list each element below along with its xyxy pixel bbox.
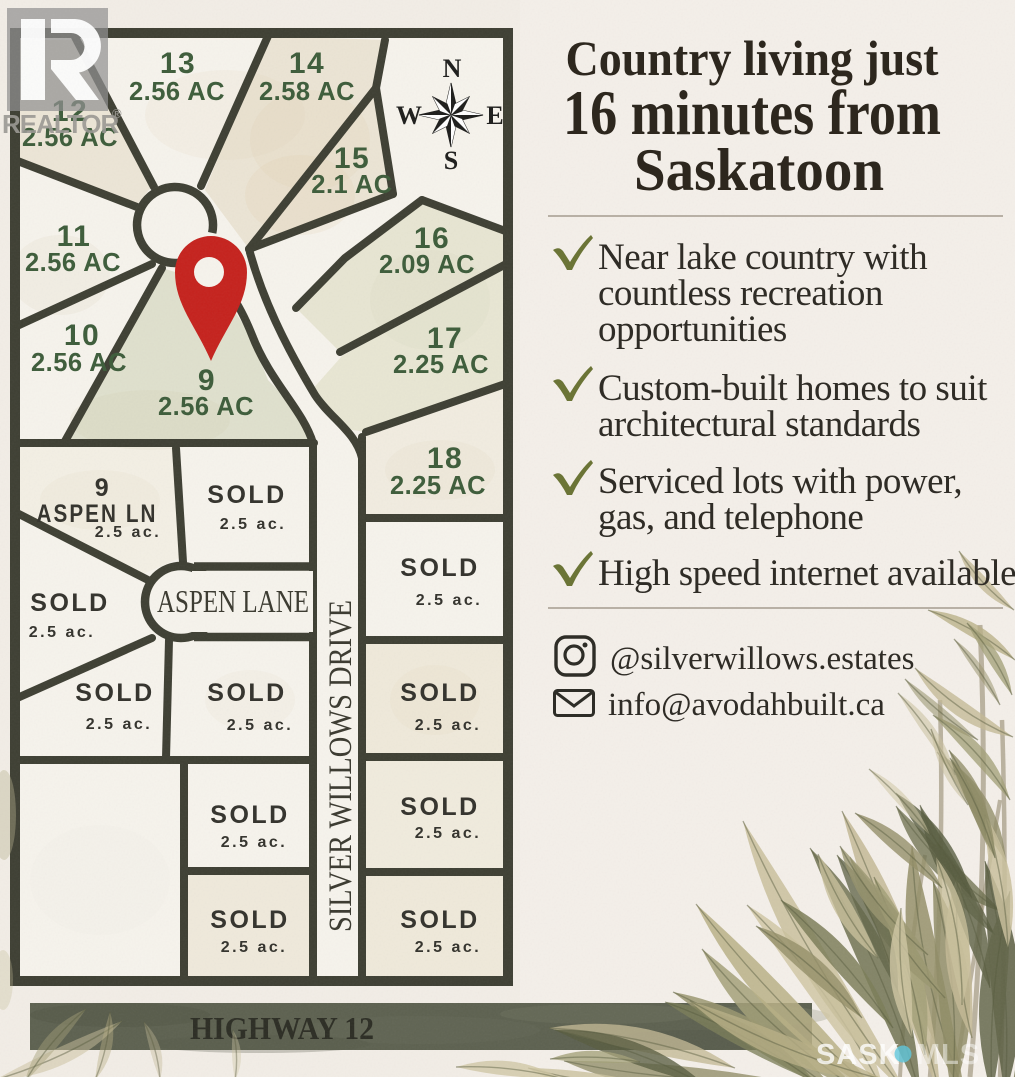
svg-text:SASK: SASK: [816, 1039, 901, 1071]
svg-text:Saskatoon: Saskatoon: [634, 137, 884, 203]
svg-text:MLS: MLS: [916, 1039, 980, 1071]
